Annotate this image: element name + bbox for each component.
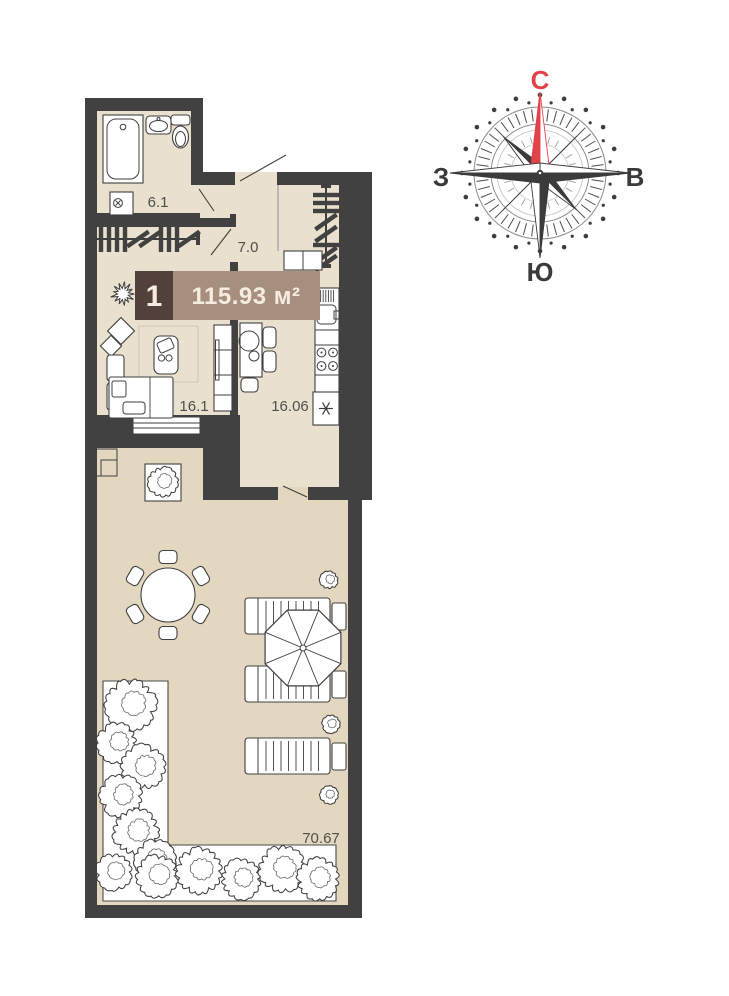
unit-number: 1: [146, 280, 163, 313]
compass-east-label: В: [626, 162, 645, 192]
wall-bathroom-right: [191, 98, 203, 185]
hanger-icon: [175, 226, 179, 252]
terrace-door-threshold: [278, 487, 308, 500]
hanger-icon: [107, 226, 111, 252]
hanger-icon: [313, 193, 339, 197]
chair-icon: [263, 327, 276, 348]
wall-left: [85, 98, 97, 918]
wall-entry-stub: [203, 172, 235, 185]
floorplan-page: 6.1 7.0 16.1 16.06 70.67 1 115.93 м² С В…: [0, 0, 729, 996]
sink-icon: [146, 116, 171, 134]
tv-stand-icon: [214, 325, 232, 411]
compass-north-label: С: [531, 65, 550, 95]
sun-lounger-icon: [245, 738, 330, 774]
compass-west-label: З: [433, 162, 449, 192]
wall-kitchen-bottom-left: [240, 487, 278, 500]
washing-machine-icon: [110, 192, 133, 215]
round-table-icon: [141, 568, 195, 622]
hanger-icon: [313, 209, 339, 213]
wall-bottom: [85, 905, 362, 918]
bathtub-icon: [103, 115, 143, 183]
bathroom-area-label: 6.1: [148, 194, 169, 211]
wall-hall-living: [200, 218, 230, 227]
toilet-icon: [171, 115, 190, 148]
terrace-area-label: 70.67: [302, 830, 340, 847]
coffee-table-icon: [154, 336, 178, 374]
living-area-label: 16.1: [179, 398, 208, 415]
hanger-icon: [313, 201, 339, 205]
compass-south-label: Ю: [527, 257, 554, 287]
compass-graphics: [450, 92, 630, 258]
wall-corner-block: [203, 415, 240, 500]
hanger-icon: [167, 226, 171, 252]
kitchen-area-label: 16.06: [271, 398, 309, 415]
wall-hall-top: [277, 172, 339, 185]
wardrobe-partition: [277, 185, 279, 251]
entry-threshold: [235, 172, 277, 185]
wall-right-upper: [339, 172, 372, 500]
fridge-icon: [313, 392, 339, 425]
side-table-icon: [332, 671, 346, 698]
floorplan-svg: 6.1 7.0 16.1 16.06 70.67 1 115.93 м² С В…: [0, 0, 729, 996]
hanger-icon: [159, 226, 163, 252]
wall-bathroom-top: [85, 98, 203, 111]
hanger-icon: [123, 226, 127, 252]
bed-icon: [109, 377, 173, 418]
chair-icon: [263, 351, 276, 372]
wall-kitchen-bottom-right: [308, 487, 372, 500]
hallway-area-label: 7.0: [238, 239, 259, 256]
shoe-bench-icon: [284, 251, 322, 270]
hanger-icon: [99, 226, 103, 252]
bush-icon: [322, 715, 341, 734]
umbrella-icon: [265, 610, 341, 686]
terrace-chair-icon: [159, 551, 177, 564]
dish-drainer-icon: [318, 290, 334, 302]
compass-rose: С В Ю З: [433, 65, 645, 287]
terrace-chair-icon: [159, 627, 177, 640]
chair-icon: [241, 378, 258, 392]
window-living: [133, 417, 200, 434]
unit-area: 115.93 м²: [192, 283, 301, 310]
wall-terrace-right: [348, 500, 362, 918]
hanger-icon: [115, 226, 119, 252]
side-table-icon: [332, 743, 346, 770]
unit-badge: 1 115.93 м²: [135, 271, 320, 320]
wall-door-notch: [230, 214, 236, 227]
